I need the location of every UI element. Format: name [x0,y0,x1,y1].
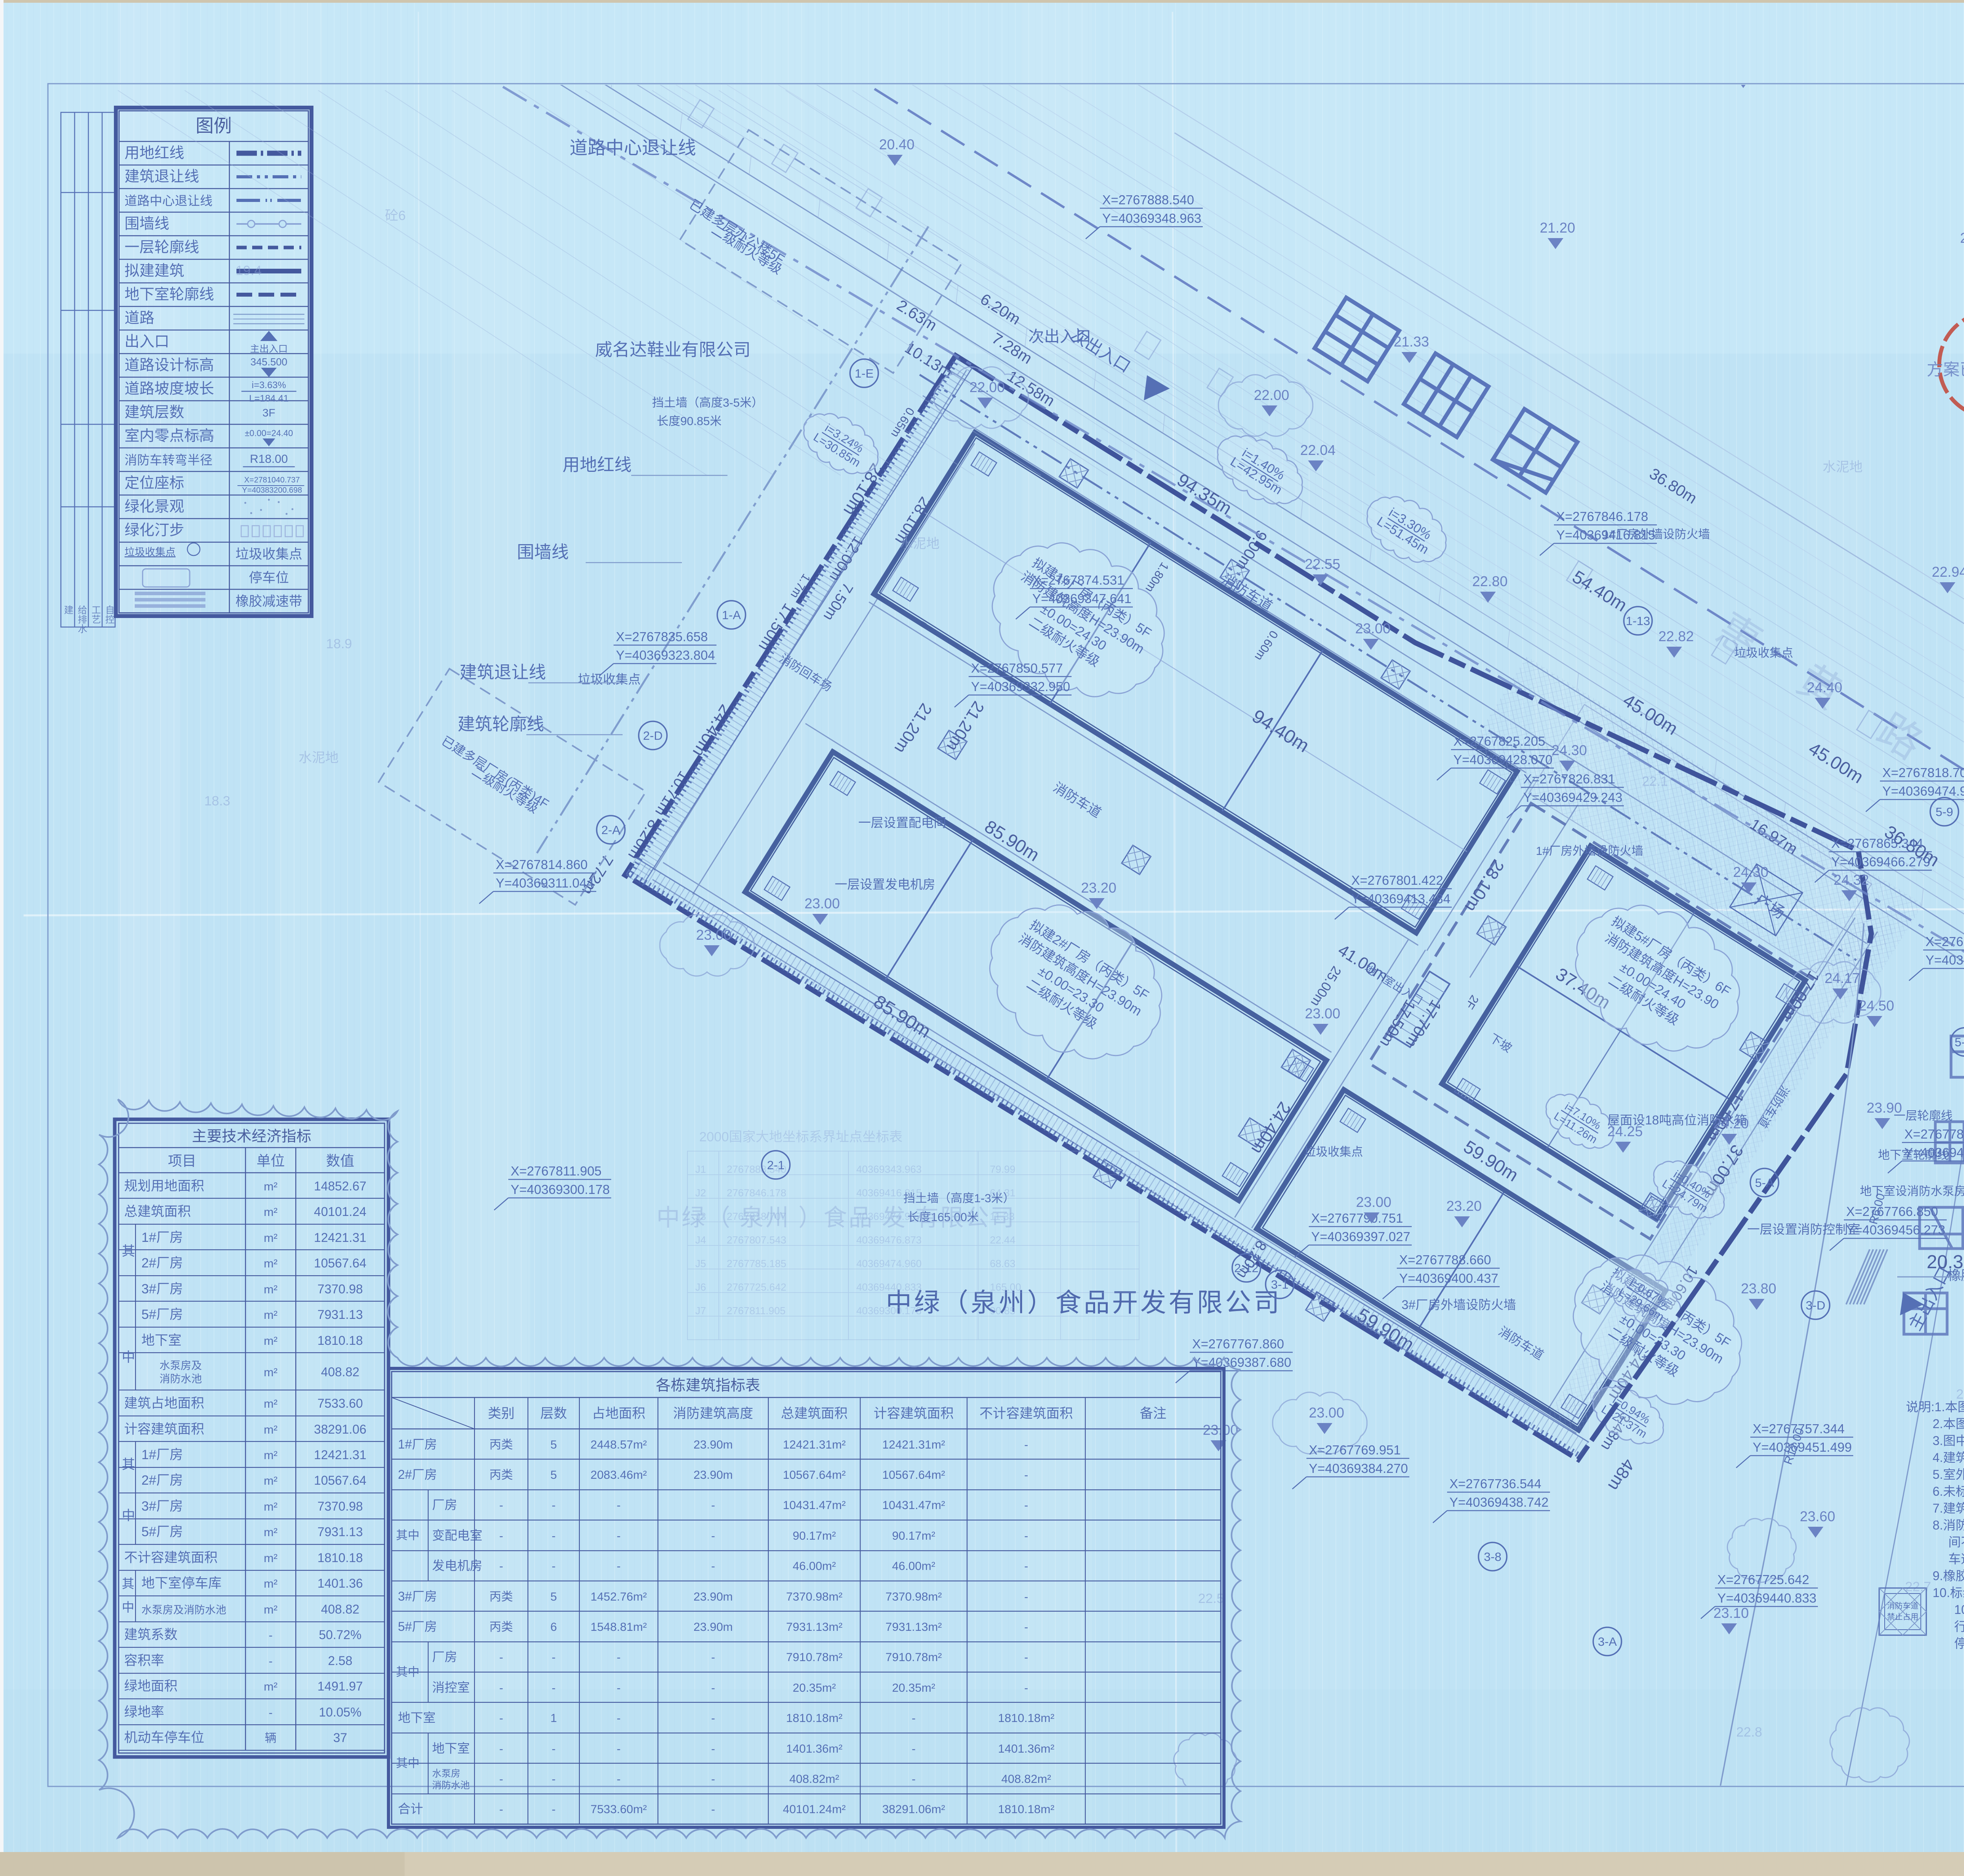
svg-text:橡胶减速带: 橡胶减速带 [236,594,302,609]
svg-text:J2: J2 [695,1187,706,1199]
svg-text:一层设置配电间: 一层设置配电间 [858,816,946,830]
svg-text:-: - [552,1651,556,1664]
svg-text:其: 其 [122,1244,135,1259]
svg-text:-: - [617,1651,621,1664]
svg-text:24.40: 24.40 [1807,679,1842,695]
svg-text:40369476.873: 40369476.873 [856,1234,922,1246]
svg-text:12421.31m²: 12421.31m² [783,1438,846,1451]
svg-text:X=2767725.642: X=2767725.642 [1717,1572,1809,1587]
svg-text:7931.13m²: 7931.13m² [786,1621,842,1634]
svg-text:23.80: 23.80 [1741,1280,1776,1297]
svg-text:水泵房及消防水池: 水泵房及消防水池 [141,1604,226,1616]
svg-text:一层轮廓线: 一层轮廓线 [125,239,199,256]
svg-text:m²: m² [264,1449,278,1462]
svg-text:m²: m² [264,1680,278,1693]
svg-text:X=2767736.544: X=2767736.544 [1449,1476,1541,1491]
svg-text:建筑层数: 建筑层数 [125,404,184,421]
svg-text:79.99: 79.99 [990,1163,1015,1175]
svg-text:23.90m: 23.90m [693,1590,733,1603]
svg-text:给排水: 给排水 [76,605,87,633]
svg-text:9.橡胶减速带做法详17J927-1-(1/3-10)。: 9.橡胶减速带做法详17J927-1-(1/3-10)。 [1933,1569,1964,1583]
svg-text:不计容建筑面积: 不计容建筑面积 [124,1550,218,1565]
svg-text:1810.18: 1810.18 [317,1333,363,1348]
svg-text:中: 中 [122,1600,134,1614]
svg-text:22.94: 22.94 [1932,564,1964,580]
svg-text:水泥地: 水泥地 [299,750,339,765]
svg-text:m²: m² [264,1577,278,1590]
svg-text:道路中心退让线: 道路中心退让线 [570,138,696,158]
svg-text:2.本图坐标为当地城市坐标系统，高程为黄海高程系统。: 2.本图坐标为当地城市坐标系统，高程为黄海高程系统。 [1933,1417,1964,1431]
svg-text:R18.00: R18.00 [250,453,288,466]
svg-text:Y=40383200.698: Y=40383200.698 [242,486,302,495]
svg-text:挡土墙（高度3-5米）: 挡土墙（高度3-5米） [652,396,763,409]
svg-text:12421.31: 12421.31 [314,1448,366,1462]
svg-text:2767811.905: 2767811.905 [727,1305,786,1317]
svg-text:-: - [711,1712,715,1725]
svg-text:Y=40369474.960: Y=40369474.960 [1904,1145,1964,1160]
svg-text:23.00: 23.00 [1355,620,1391,636]
svg-text:-: - [617,1682,621,1694]
svg-text:408.82m²: 408.82m² [790,1773,839,1786]
svg-text:-: - [1024,1469,1028,1482]
svg-text:1#厂房: 1#厂房 [398,1437,437,1451]
svg-text:消防建筑高度: 消防建筑高度 [673,1406,753,1421]
svg-text:围墙线: 围墙线 [517,543,569,562]
svg-text:23.90m: 23.90m [693,1469,733,1482]
svg-text:-: - [711,1499,715,1512]
svg-text:Y=40369451.499: Y=40369451.499 [1753,1440,1852,1454]
svg-text:±0.00=24.40: ±0.00=24.40 [245,428,293,438]
svg-text:m²: m² [264,1397,278,1410]
svg-text:-: - [912,1742,916,1755]
svg-text:停车位: 停车位 [249,570,289,585]
svg-text:图例: 图例 [196,116,232,136]
svg-text:合计: 合计 [398,1802,423,1816]
svg-text:2-12: 2-12 [1234,1261,1259,1275]
svg-text:2#厂房: 2#厂房 [141,1473,183,1488]
svg-text:22.8: 22.8 [1736,1725,1762,1740]
svg-text:其: 其 [122,1577,134,1591]
svg-text:7.建筑定位坐标为建筑角点座标。: 7.建筑定位坐标为建筑角点座标。 [1933,1501,1964,1515]
svg-text:Y=40369428.070: Y=40369428.070 [1453,752,1552,767]
svg-text:7533.60: 7533.60 [317,1396,363,1410]
svg-text:道路: 道路 [125,310,154,326]
svg-text:2#厂房: 2#厂房 [141,1256,183,1271]
svg-text:地下室轮廓线: 地下室轮廓线 [125,286,214,303]
svg-text:7370.98: 7370.98 [317,1282,363,1296]
svg-text:-: - [499,1742,503,1755]
svg-text:i=3.63%: i=3.63% [252,380,286,391]
svg-text:Y=40369311.044: Y=40369311.044 [496,876,594,890]
svg-text:1: 1 [550,1712,557,1725]
svg-text:2#厂房: 2#厂房 [398,1467,437,1482]
svg-text:水泵房: 水泵房 [432,1768,460,1779]
svg-text:Y=40369429.243: Y=40369429.243 [1523,790,1622,805]
svg-text:m²: m² [264,1423,278,1436]
svg-text:24.50: 24.50 [1859,998,1894,1014]
svg-text:40369416.815: 40369416.815 [856,1187,922,1199]
svg-text:J1: J1 [695,1163,706,1175]
svg-text:14852.67: 14852.67 [314,1179,366,1193]
svg-text:行车方向标注内容为"消防车道禁止占用"的警示字样。禁: 行车方向标注内容为"消防车道禁止占用"的警示字样。禁 [1954,1619,1964,1634]
svg-text:21.20: 21.20 [1540,220,1575,236]
svg-text:24.30: 24.30 [1552,742,1587,758]
svg-text:厂房: 厂房 [432,1650,457,1664]
svg-text:38291.06m²: 38291.06m² [882,1803,945,1816]
svg-text:18.3: 18.3 [204,794,230,809]
svg-text:10431.47m²: 10431.47m² [882,1499,945,1512]
svg-text:1452.76m²: 1452.76m² [590,1590,647,1603]
svg-text:X=2767818.707: X=2767818.707 [1882,765,1964,780]
svg-text:X=2767757.344: X=2767757.344 [1753,1421,1845,1436]
svg-text:1#厂房外墙设防火墙: 1#厂房外墙设防火墙 [1536,845,1643,858]
svg-text:垃圾收集点: 垃圾收集点 [1734,647,1793,660]
svg-text:7370.98m²: 7370.98m² [786,1590,842,1603]
svg-text:消控室: 消控室 [432,1680,470,1694]
svg-text:J4: J4 [695,1234,706,1246]
svg-text:建筑占地面积: 建筑占地面积 [124,1396,204,1411]
svg-text:-: - [552,1773,556,1786]
svg-text:X=2767888.540: X=2767888.540 [1102,193,1194,207]
svg-text:m²: m² [264,1500,278,1513]
svg-text:丙类: 丙类 [489,1469,513,1482]
svg-text:出入口: 出入口 [125,334,169,350]
svg-text:m²: m² [264,1474,278,1487]
svg-text:Y=40369456.273: Y=40369456.273 [1846,1223,1945,1237]
svg-text:X=2767807.543: X=2767807.543 [1926,934,1964,949]
svg-text:m²: m² [264,1603,278,1616]
svg-text:围墙线: 围墙线 [125,216,169,232]
svg-text:用地红线: 用地红线 [125,145,184,161]
svg-text:绿地面积: 绿地面积 [124,1679,178,1694]
svg-text:23.10: 23.10 [1713,1605,1749,1621]
svg-text:水泵房及: 水泵房及 [159,1360,202,1372]
svg-text:7910.78m²: 7910.78m² [885,1651,942,1664]
svg-text:1491.97: 1491.97 [317,1679,363,1693]
svg-text:345.500: 345.500 [251,356,288,368]
svg-text:7931.13: 7931.13 [317,1308,363,1322]
svg-text:24.20: 24.20 [1713,1115,1749,1131]
svg-text:Y=40369400.437: Y=40369400.437 [1399,1271,1498,1286]
svg-text:3-1: 3-1 [1271,1278,1289,1291]
svg-text:Y=40369476.873: Y=40369476.873 [1926,953,1964,967]
svg-text:-: - [552,1529,556,1542]
svg-text:40369474.957: 40369474.957 [856,1210,922,1222]
svg-text:23.00: 23.00 [696,927,731,943]
svg-text:5#厂房: 5#厂房 [141,1307,183,1322]
svg-text:地下室: 地下室 [432,1741,470,1755]
svg-text:-: - [711,1651,715,1664]
svg-text:建: 建 [62,605,73,614]
svg-text:中绿（ 泉州 ）食品 发 有限公司: 中绿（ 泉州 ）食品 发 有限公司 [656,1205,1016,1231]
svg-text:1-A: 1-A [722,608,741,622]
svg-text:地下室设消防水泵房及810吨消防水池: 地下室设消防水泵房及810吨消防水池 [1860,1185,1964,1198]
svg-text:m²: m² [264,1552,278,1565]
svg-text:23.20: 23.20 [1081,880,1116,896]
svg-text:3#厂房外墙设防火墙: 3#厂房外墙设防火墙 [1402,1298,1516,1312]
svg-text:停标线长宽不小于2m× 1.5m。: 停标线长宽不小于2m× 1.5m。 [1954,1636,1964,1650]
svg-text:-: - [499,1682,503,1694]
svg-text:3#厂房: 3#厂房 [141,1282,183,1297]
svg-text:90.17m²: 90.17m² [793,1529,836,1542]
svg-text:m²: m² [264,1335,278,1348]
svg-text:其中: 其中 [396,1529,420,1542]
svg-text:40369440.833: 40369440.833 [856,1281,922,1293]
svg-text:m²: m² [264,1526,278,1539]
svg-text:说明:1.本图标高依业主提供现状实测标高设计。: 说明:1.本图标高依业主提供现状实测标高设计。 [1906,1400,1964,1414]
svg-text:1#厂房: 1#厂房 [141,1447,183,1462]
svg-text:1810.18m²: 1810.18m² [786,1712,842,1725]
svg-text:各栋建筑指标表: 各栋建筑指标表 [656,1377,760,1394]
svg-text:水泥地: 水泥地 [900,536,940,551]
svg-text:垃圾收集点: 垃圾收集点 [1304,1146,1363,1159]
svg-text:-: - [499,1529,503,1542]
svg-text:3-D: 3-D [1806,1298,1825,1312]
svg-text:一层轮廓线: 一层轮廓线 [1894,1109,1953,1122]
svg-text:3#厂房: 3#厂房 [141,1499,183,1514]
svg-text:建筑轮廓线: 建筑轮廓线 [458,715,544,734]
svg-text:垃圾收集点: 垃圾收集点 [578,672,641,686]
svg-text:厂房: 厂房 [432,1498,457,1512]
svg-text:12421.31: 12421.31 [314,1230,366,1245]
svg-text:2448.57m²: 2448.57m² [590,1438,647,1451]
svg-text:自控: 自控 [104,605,115,624]
svg-text:绿化景观: 绿化景观 [125,499,184,515]
svg-text:408.82: 408.82 [321,1602,359,1616]
svg-text:22.80: 22.80 [1472,573,1508,589]
svg-text:-: - [552,1742,556,1755]
svg-text:道路设计标高: 道路设计标高 [125,357,214,374]
svg-text:间不应设置妨碍消防车操作的树木、架空管线等障碍物。消防: 间不应设置妨碍消防车操作的树木、架空管线等障碍物。消防 [1948,1535,1964,1549]
svg-text:消防水池: 消防水池 [432,1780,470,1791]
svg-text:主要技术经济指标: 主要技术经济指标 [192,1128,311,1145]
svg-text:主出入口: 主出入口 [250,344,288,354]
svg-text:其中: 其中 [396,1666,420,1679]
svg-text:m²: m² [264,1206,278,1219]
svg-text:消防车转弯半径: 消防车转弯半径 [125,453,213,467]
svg-text:绿地率: 绿地率 [124,1705,164,1720]
svg-text:5: 5 [550,1469,557,1482]
svg-text:J3: J3 [695,1210,706,1222]
svg-text:2767725.642: 2767725.642 [727,1281,786,1293]
svg-text:-: - [1024,1499,1028,1512]
svg-text:-: - [499,1499,503,1512]
svg-text:23.00: 23.00 [1356,1194,1391,1210]
svg-text:6: 6 [550,1621,557,1634]
svg-text:23.90m: 23.90m [693,1438,733,1451]
svg-text:64.31: 64.31 [990,1187,1015,1199]
svg-text:10567.64: 10567.64 [314,1256,366,1270]
svg-text:Y=40369384.270: Y=40369384.270 [1309,1461,1408,1476]
svg-text:m²: m² [264,1180,278,1193]
svg-text:占地面积: 占地面积 [592,1406,645,1421]
svg-text:水泥地: 水泥地 [1823,460,1863,475]
svg-text:2-D: 2-D [643,729,663,743]
svg-text:50.72%: 50.72% [319,1628,362,1642]
svg-text:22.55: 22.55 [1305,556,1340,572]
svg-text:J5: J5 [695,1258,706,1269]
svg-text:m²: m² [264,1309,278,1322]
svg-text:Y=40369332.950: Y=40369332.950 [971,679,1070,694]
svg-text:X=2781040.737: X=2781040.737 [244,476,300,484]
svg-text:165.00: 165.00 [990,1281,1021,1293]
svg-text:-: - [1024,1590,1028,1603]
svg-text:7370.98: 7370.98 [317,1499,363,1513]
svg-text:10.05%: 10.05% [319,1705,362,1719]
svg-text:-: - [617,1499,621,1512]
svg-text:建筑系数: 建筑系数 [124,1627,178,1642]
svg-text:-: - [1024,1560,1028,1573]
svg-text:总建筑面积: 总建筑面积 [124,1204,191,1219]
svg-text:10567.64: 10567.64 [314,1473,366,1487]
svg-text:23.20: 23.20 [1446,1198,1482,1214]
svg-text:总建筑面积: 总建筑面积 [781,1406,848,1421]
svg-text:L=184.41: L=184.41 [249,393,289,404]
svg-text:3#厂房: 3#厂房 [398,1589,437,1603]
svg-text:不计容建筑面积: 不计容建筑面积 [980,1406,1073,1421]
svg-text:车道承载力不应小于35KN/M²。: 车道承载力不应小于35KN/M²。 [1948,1552,1964,1566]
svg-text:绿化汀步: 绿化汀步 [125,522,184,539]
svg-text:X=2767814.860: X=2767814.860 [496,857,588,872]
svg-text:5-G: 5-G [1955,1035,1964,1049]
svg-text:1810.18m²: 1810.18m² [998,1712,1054,1725]
svg-text:规划用地面积: 规划用地面积 [124,1179,204,1194]
svg-text:-: - [499,1712,503,1725]
svg-text:X=2767801.422: X=2767801.422 [1351,873,1443,888]
svg-text:7370.98m²: 7370.98m² [885,1590,942,1603]
svg-text:1401.36m²: 1401.36m² [998,1742,1054,1755]
svg-text:2767785.185: 2767785.185 [727,1258,786,1269]
svg-text:其: 其 [122,1457,135,1472]
svg-text:4.建筑物上标高均为各幢的±0.00相应的黄海高程。: 4.建筑物上标高均为各幢的±0.00相应的黄海高程。 [1933,1451,1964,1465]
svg-text:6.未标注的路面横坡均为2%。: 6.未标注的路面横坡均为2%。 [1933,1484,1964,1498]
svg-text:-: - [617,1529,621,1542]
svg-text:5#厂房: 5#厂房 [398,1619,437,1634]
svg-text:10431.47m²: 10431.47m² [783,1499,846,1512]
svg-text:长度90.85米: 长度90.85米 [657,415,722,428]
svg-text:威名达鞋业有限公司: 威名达鞋业有限公司 [595,340,751,359]
svg-text:层数: 层数 [540,1406,567,1421]
svg-text:2.58: 2.58 [328,1654,352,1668]
svg-text:40369300.178: 40369300.178 [856,1305,922,1317]
svg-text:-: - [711,1560,715,1573]
svg-text:24.25: 24.25 [1607,1123,1643,1139]
svg-text:-: - [711,1773,715,1786]
svg-text:20.35m²: 20.35m² [892,1682,935,1694]
svg-text:10.标线为黄色网状实线，外边框线宽20厘米，内部网格线宽: 10.标线为黄色网状实线，外边框线宽20厘米，内部网格线宽 [1933,1586,1964,1600]
svg-text:23.90m: 23.90m [693,1621,733,1634]
svg-text:19.4: 19.4 [236,263,262,278]
svg-text:21.60: 21.60 [1960,230,1964,246]
svg-text:-: - [711,1682,715,1694]
svg-text:中: 中 [122,1350,135,1365]
svg-text:5#厂房: 5#厂房 [141,1524,183,1539]
svg-text:22.44: 22.44 [990,1234,1015,1246]
svg-text:其中: 其中 [396,1757,420,1770]
svg-text:-: - [499,1560,503,1573]
svg-text:-: - [269,1655,273,1668]
svg-text:22.82: 22.82 [1658,628,1694,644]
svg-text:1810.18: 1810.18 [317,1551,363,1565]
svg-text:备注: 备注 [1140,1406,1167,1421]
svg-text:7910.78m²: 7910.78m² [786,1651,842,1664]
svg-text:地下室: 地下室 [398,1711,436,1725]
svg-text:5-A: 5-A [1755,1176,1774,1190]
svg-text:计容建筑面积: 计容建筑面积 [874,1406,954,1421]
svg-text:用地红线: 用地红线 [562,455,632,475]
svg-text:-: - [912,1773,916,1786]
svg-text:-: - [711,1742,715,1755]
svg-text:7533.60m²: 7533.60m² [590,1803,647,1816]
svg-text:23.00: 23.00 [804,895,840,911]
svg-text:2-A: 2-A [601,823,621,837]
svg-text:m²: m² [264,1283,278,1296]
svg-text:-: - [269,1706,273,1719]
svg-text:-: - [552,1803,556,1816]
svg-text:22.7: 22.7 [1905,1579,1931,1594]
svg-text:1401.36: 1401.36 [317,1576,363,1590]
svg-text:1810.18m²: 1810.18m² [998,1803,1054,1816]
svg-text:X=2767767.860: X=2767767.860 [1192,1337,1284,1351]
svg-text:22.5: 22.5 [1198,1591,1224,1606]
svg-text:一层设置消防控制室: 一层设置消防控制室 [1747,1222,1860,1236]
svg-text:Y=40369397.027: Y=40369397.027 [1311,1229,1410,1244]
svg-text:Y=40369474.957: Y=40369474.957 [1882,784,1964,798]
svg-text:类别: 类别 [488,1406,515,1421]
svg-text:20.35m²: 20.35m² [793,1682,836,1694]
svg-text:X=2767786.185: X=2767786.185 [1904,1127,1964,1141]
svg-text:1548.81m²: 1548.81m² [590,1621,647,1634]
svg-text:丙类: 丙类 [489,1590,513,1603]
svg-text:22.00: 22.00 [1254,387,1289,403]
svg-text:道路坡度坡长: 道路坡度坡长 [125,381,214,397]
svg-text:5: 5 [550,1590,557,1603]
svg-text:X=2767846.178: X=2767846.178 [1556,509,1648,524]
svg-text:X=2767788.660: X=2767788.660 [1399,1253,1491,1267]
svg-text:7931.13: 7931.13 [317,1525,363,1539]
svg-text:垃圾收集点: 垃圾收集点 [236,547,302,562]
svg-text:-: - [617,1773,621,1786]
svg-text:1#厂房: 1#厂房 [141,1230,183,1245]
svg-text:2083.46m²: 2083.46m² [590,1469,647,1482]
svg-text:Y=40369348.963: Y=40369348.963 [1102,211,1201,226]
svg-text:Y=40369300.178: Y=40369300.178 [511,1182,610,1197]
svg-text:Y=40369438.742: Y=40369438.742 [1449,1495,1548,1509]
svg-text:-: - [499,1803,503,1816]
svg-text:辆: 辆 [265,1732,277,1745]
svg-text:37: 37 [333,1731,347,1745]
svg-text:地下室: 地下室 [141,1333,181,1348]
svg-text:90.85: 90.85 [990,1305,1015,1317]
svg-text:丙类: 丙类 [489,1621,513,1634]
svg-text:20.40: 20.40 [879,136,914,152]
svg-text:-: - [711,1803,715,1816]
svg-text:22.1: 22.1 [1642,774,1668,789]
svg-text:-: - [1024,1529,1028,1542]
svg-text:5-9: 5-9 [1936,805,1953,819]
svg-text:-: - [552,1682,556,1694]
svg-text:-: - [1024,1682,1028,1694]
svg-text:容积率: 容积率 [124,1653,164,1668]
svg-text:2767818.707: 2767818.707 [727,1210,786,1222]
svg-text:消防车道: 消防车道 [1887,1601,1918,1610]
svg-text:23.90: 23.90 [1867,1100,1902,1116]
svg-text:68.63: 68.63 [990,1258,1015,1269]
svg-text:23.00: 23.00 [1309,1405,1344,1421]
svg-text:X=2767850.577: X=2767850.577 [971,661,1063,675]
svg-text:Y=40369440.833: Y=40369440.833 [1717,1591,1816,1605]
svg-text:18.9: 18.9 [326,636,352,651]
